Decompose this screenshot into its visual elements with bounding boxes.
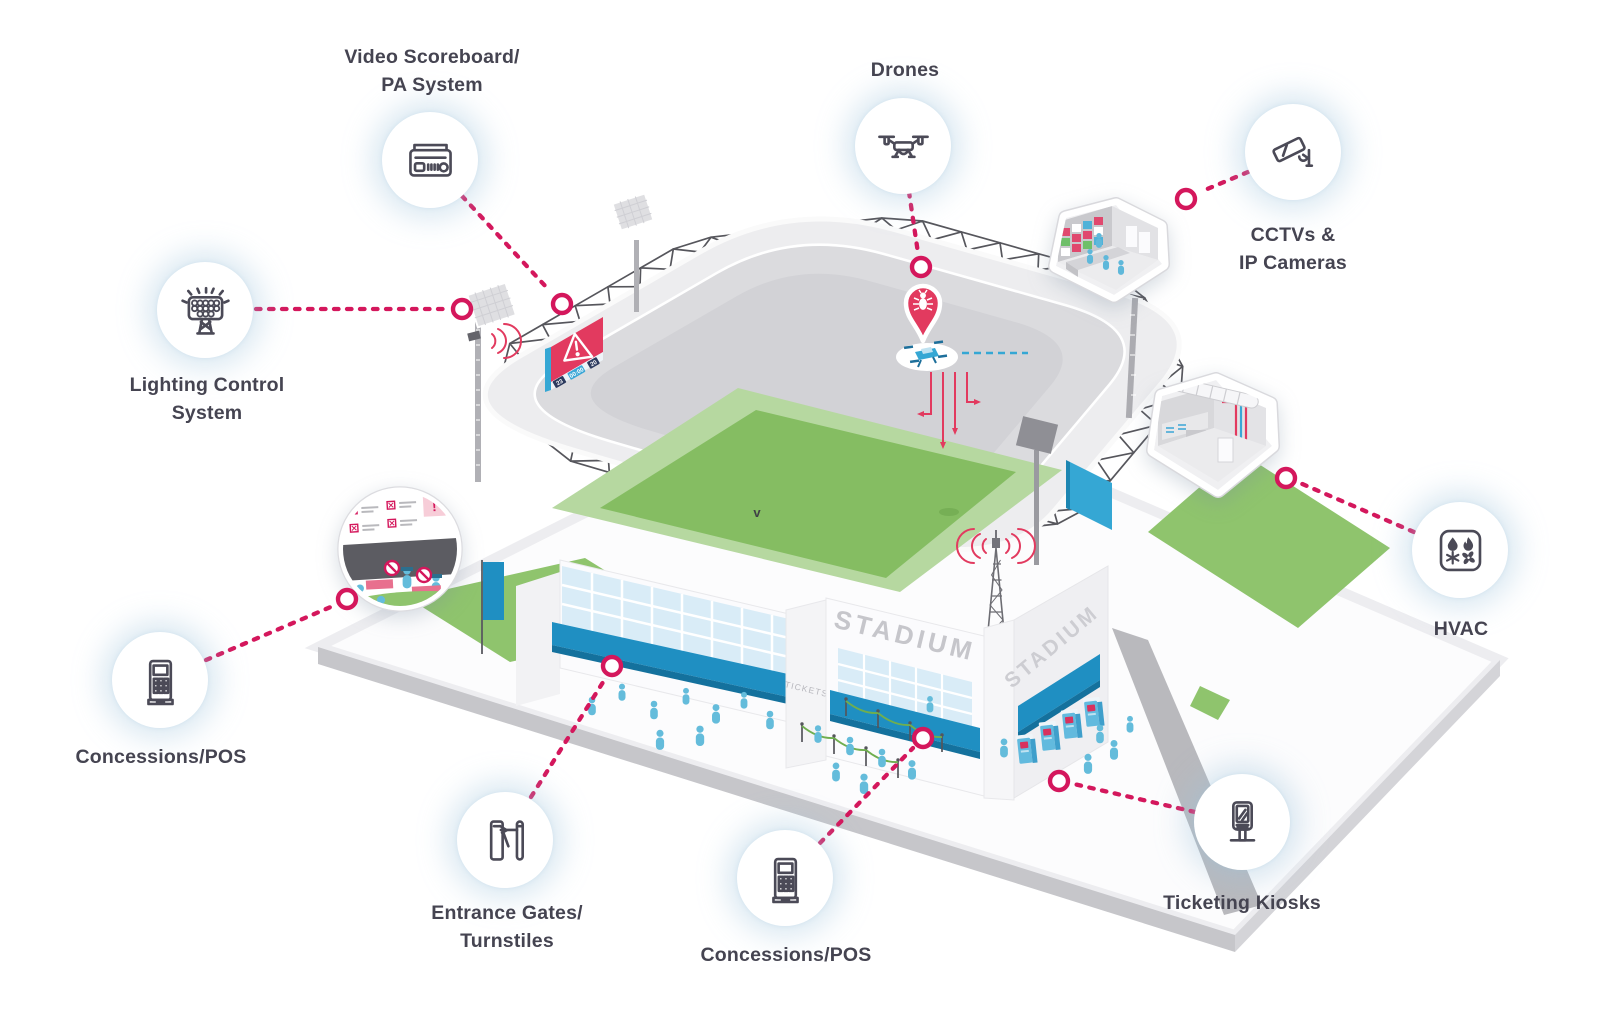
drones-label: Drones <box>805 57 1005 85</box>
connector-video-scoreboard <box>462 196 548 289</box>
lighting-label: Lighting Control System <box>57 372 357 427</box>
ticketing-label: Ticketing Kiosks <box>1092 890 1392 918</box>
signal-waves-left-mast <box>492 324 521 358</box>
anchor-video-scoreboard <box>553 295 571 313</box>
hvac-label: HVAC <box>1361 616 1561 644</box>
anchor-ticketing <box>1050 772 1068 790</box>
hvac-badge <box>1412 502 1508 598</box>
cctv-label: CCTVs & IP Cameras <box>1173 222 1413 277</box>
banner-flag <box>483 562 504 620</box>
hvac-icon <box>1433 523 1488 578</box>
entrance-gates-label: Entrance Gates/ Turnstiles <box>357 900 657 955</box>
entrance-gates-badge <box>457 792 553 888</box>
floodlight-icon <box>178 283 233 338</box>
field-mark: v <box>753 505 761 520</box>
concessions-bottom-label: Concessions/POS <box>636 942 936 970</box>
concessions-left-badge <box>112 632 208 728</box>
drone-shadow <box>939 508 959 516</box>
ticket-kiosk-icon <box>1215 795 1270 850</box>
anchor-concessions-left <box>338 590 356 608</box>
anchor-cctv <box>1177 190 1195 208</box>
connector-cctv <box>1200 172 1248 192</box>
anchor-entrance-gates <box>603 657 621 675</box>
concessions-bottom-badge <box>737 830 833 926</box>
smart-stadium-infographic: v 23 00:00 20 <box>0 0 1600 1035</box>
scoreboard-speaker-icon <box>403 133 458 188</box>
cctv-camera-icon <box>1266 125 1321 180</box>
pos-terminal-icon <box>758 851 813 906</box>
control-room-inset <box>1056 205 1162 295</box>
anchor-drones <box>912 258 930 276</box>
pos-terminal-icon <box>133 653 188 708</box>
anchor-hvac <box>1277 469 1295 487</box>
video-scoreboard-label: Video Scoreboard/ PA System <box>272 44 592 99</box>
drone-icon <box>876 119 931 174</box>
cctv-badge <box>1245 104 1341 200</box>
anchor-lighting <box>453 300 471 318</box>
lighting-badge <box>157 262 253 358</box>
anchor-concessions-bottom <box>914 729 932 747</box>
concessions-left-label: Concessions/POS <box>11 744 311 772</box>
drones-badge <box>855 98 951 194</box>
ticketing-badge <box>1194 774 1290 870</box>
connector-concessions-left <box>206 606 333 660</box>
video-scoreboard-badge <box>382 112 478 208</box>
turnstile-icon <box>478 813 533 868</box>
